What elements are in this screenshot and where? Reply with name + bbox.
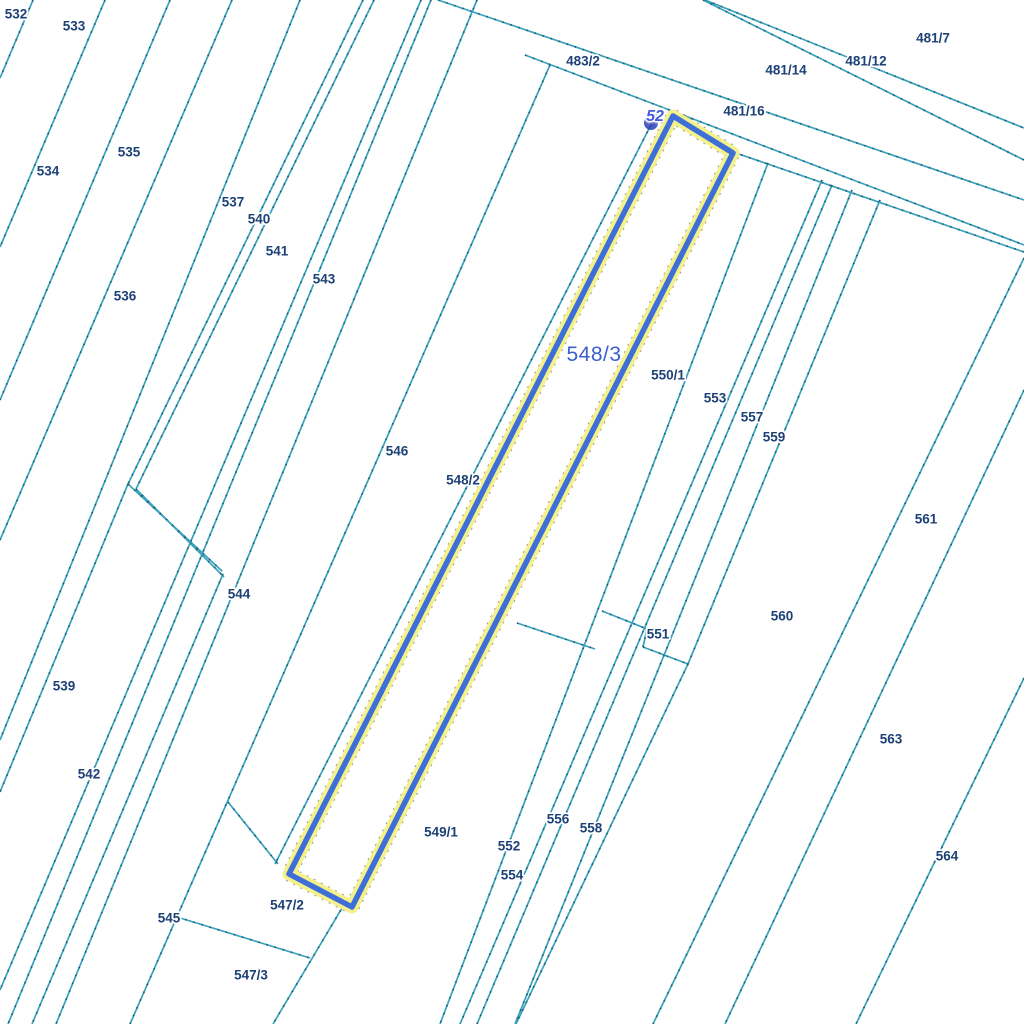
boundary-line (0, 0, 105, 247)
parcel-label-547-2: 547/2 (270, 898, 304, 913)
parcel-label-542: 542 (78, 767, 101, 782)
parcel-label-540: 540 (248, 212, 271, 227)
parcel-label-547-3: 547/3 (234, 968, 268, 983)
parcel-label-558: 558 (580, 821, 603, 836)
parcel-label-481-12: 481/12 (845, 54, 886, 69)
boundary-line (0, 0, 232, 540)
boundary-line (517, 623, 595, 649)
parcel-label-560: 560 (771, 609, 794, 624)
parcel-label-561: 561 (915, 512, 938, 527)
parcel-label-556: 556 (547, 812, 570, 827)
parcel-label-564: 564 (936, 849, 959, 864)
selected-parcel-outline[interactable] (289, 116, 733, 907)
parcel-label-546: 546 (386, 444, 409, 459)
parcel-label-563: 563 (880, 732, 903, 747)
parcel-label-481-14: 481/14 (765, 63, 807, 78)
parcel-label-539: 539 (53, 679, 76, 694)
parcel-label-549-1: 549/1 (424, 825, 458, 840)
parcel-label-553: 553 (704, 391, 727, 406)
parcel-label-535: 535 (118, 145, 141, 160)
boundary-line (0, 0, 170, 400)
selected-parcel-id-label: 548/3 (566, 343, 621, 367)
boundary-line (177, 917, 310, 958)
parcel-label-557: 557 (741, 410, 764, 425)
parcel-label-550-1: 550/1 (651, 368, 685, 383)
boundary-line (228, 802, 278, 864)
vertex-marker-label[interactable]: 52 (646, 108, 664, 126)
parcel-label-544: 544 (228, 587, 251, 602)
parcel-label-541: 541 (266, 244, 289, 259)
boundary-line-dash (653, 258, 1024, 1024)
parcel-label-559: 559 (763, 430, 786, 445)
map-svg[interactable]: 5325335345355365375405415435445395425455… (0, 0, 1024, 1024)
parcel-label-532: 532 (5, 7, 28, 22)
parcel-label-548-2: 548/2 (446, 473, 480, 488)
boundary-line (32, 574, 223, 1024)
parcel-label-552: 552 (498, 839, 521, 854)
selected-parcel-548-3[interactable] (289, 116, 733, 907)
parcel-label-534: 534 (37, 164, 60, 179)
parcel-label-533: 533 (63, 19, 86, 34)
parcel-label-545: 545 (158, 911, 181, 926)
parcel-label-481-16: 481/16 (723, 104, 765, 119)
parcel-label-483-2: 483/2 (566, 54, 600, 69)
parcel-label-481-7: 481/7 (916, 31, 950, 46)
boundary-line (136, 0, 374, 489)
parcel-label-543: 543 (313, 272, 336, 287)
boundary-line (0, 484, 128, 792)
parcel-label-554: 554 (501, 868, 524, 883)
parcel-label-537: 537 (222, 195, 245, 210)
parcel-label-551: 551 (647, 627, 670, 642)
map-canvas[interactable]: 5325335345355365375405415435445395425455… (0, 0, 1024, 1024)
boundary-line (602, 611, 647, 629)
boundary-line (525, 55, 1024, 245)
parcel-label-536: 536 (114, 289, 137, 304)
